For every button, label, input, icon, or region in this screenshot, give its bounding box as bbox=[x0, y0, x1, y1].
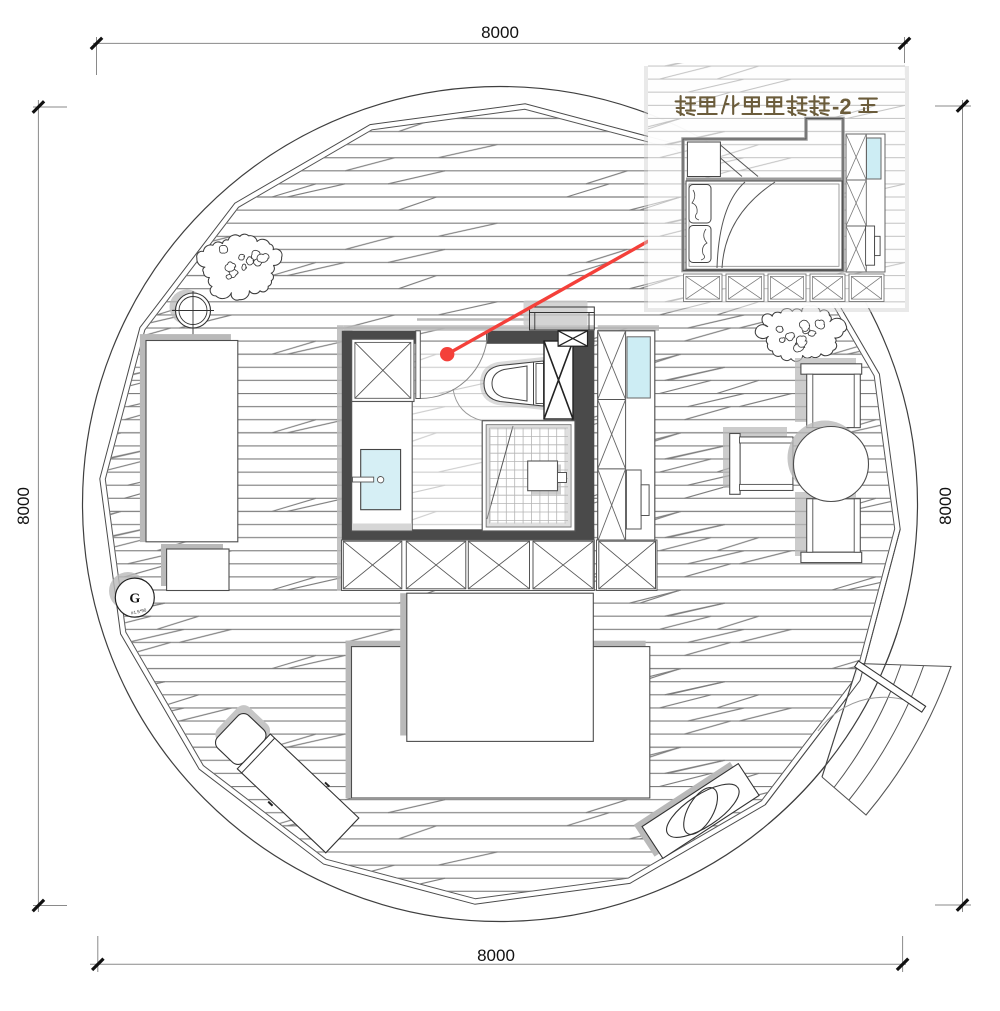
svg-text:8000: 8000 bbox=[14, 487, 33, 525]
svg-text:8000: 8000 bbox=[477, 946, 515, 965]
svg-text:-2: -2 bbox=[832, 94, 852, 119]
svg-text:G: G bbox=[129, 592, 140, 607]
svg-text:8000: 8000 bbox=[936, 487, 955, 525]
svg-text:8000: 8000 bbox=[481, 23, 519, 42]
